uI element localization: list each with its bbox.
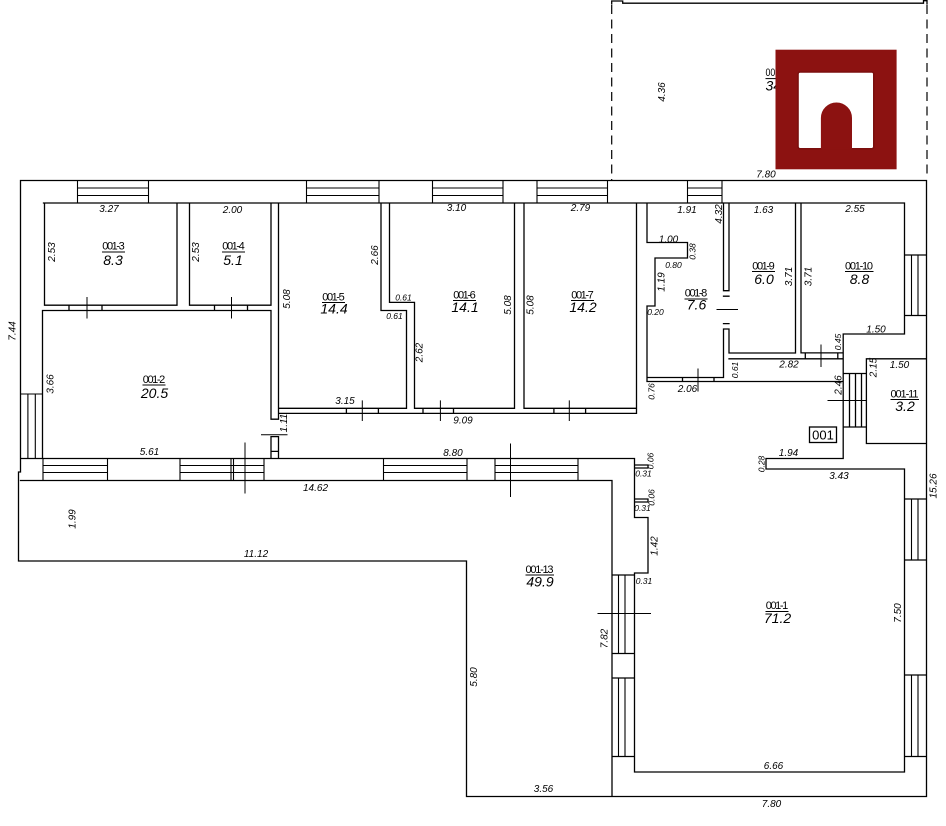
svg-text:4.32: 4.32 (714, 204, 725, 224)
svg-text:6.0: 6.0 (754, 271, 774, 287)
svg-text:2.55: 2.55 (844, 204, 865, 215)
svg-text:2.79: 2.79 (570, 203, 591, 214)
svg-text:1.94: 1.94 (779, 448, 799, 459)
svg-text:9.09: 9.09 (453, 416, 473, 427)
svg-text:1.19: 1.19 (657, 272, 668, 292)
svg-text:1.63: 1.63 (754, 205, 774, 216)
svg-text:2.15: 2.15 (869, 357, 880, 378)
svg-text:8.80: 8.80 (443, 448, 463, 459)
svg-text:001-4: 001-4 (222, 241, 245, 253)
svg-text:2.53: 2.53 (191, 242, 202, 263)
svg-text:71.2: 71.2 (764, 610, 791, 626)
svg-text:2.62: 2.62 (415, 342, 426, 363)
svg-text:5.08: 5.08 (526, 295, 537, 315)
svg-text:20.5: 20.5 (140, 385, 168, 401)
svg-text:0.38: 0.38 (688, 243, 698, 260)
svg-text:5.08: 5.08 (282, 289, 293, 309)
svg-text:1.11: 1.11 (279, 414, 290, 433)
svg-text:0.28: 0.28 (757, 455, 767, 472)
svg-text:1.91: 1.91 (677, 205, 696, 216)
svg-text:0.61: 0.61 (395, 293, 412, 303)
svg-text:14.1: 14.1 (451, 299, 478, 315)
svg-text:8.3: 8.3 (103, 252, 123, 268)
svg-text:5.1: 5.1 (223, 252, 242, 268)
svg-text:14.2: 14.2 (569, 299, 596, 315)
svg-text:5.08: 5.08 (503, 295, 514, 315)
svg-text:0.76: 0.76 (647, 383, 657, 400)
svg-text:1.42: 1.42 (650, 536, 661, 556)
svg-text:0.45: 0.45 (833, 333, 843, 350)
svg-text:7.82: 7.82 (600, 628, 611, 648)
svg-text:2.06: 2.06 (677, 384, 698, 395)
svg-text:3.15: 3.15 (335, 396, 355, 407)
svg-text:3.71: 3.71 (804, 267, 815, 286)
svg-text:14.62: 14.62 (303, 483, 328, 494)
svg-text:0.20: 0.20 (647, 307, 664, 317)
svg-text:3.43: 3.43 (829, 471, 849, 482)
svg-text:001: 001 (812, 428, 834, 443)
svg-text:0.61: 0.61 (386, 311, 403, 321)
svg-text:7.80: 7.80 (756, 170, 776, 181)
svg-text:3.71: 3.71 (784, 267, 795, 286)
svg-text:7.6: 7.6 (687, 297, 707, 313)
svg-text:2.46: 2.46 (834, 375, 845, 396)
svg-text:1.99: 1.99 (68, 509, 79, 529)
svg-text:2.00: 2.00 (222, 205, 243, 216)
svg-text:2.82: 2.82 (778, 360, 799, 371)
svg-text:49.9: 49.9 (526, 574, 553, 590)
svg-text:8.8: 8.8 (850, 271, 870, 287)
svg-text:1.50: 1.50 (866, 325, 886, 336)
svg-text:5.80: 5.80 (469, 667, 480, 687)
svg-text:3.66: 3.66 (46, 374, 57, 394)
svg-text:0.80: 0.80 (665, 260, 682, 270)
svg-text:3.10: 3.10 (447, 203, 467, 214)
svg-text:7.44: 7.44 (8, 321, 19, 341)
svg-text:15.26: 15.26 (929, 473, 940, 498)
svg-text:1.00: 1.00 (659, 235, 679, 246)
svg-text:7.80: 7.80 (762, 799, 782, 810)
svg-text:4.36: 4.36 (657, 82, 668, 102)
svg-text:6.66: 6.66 (764, 761, 784, 772)
svg-text:1.50: 1.50 (890, 360, 910, 371)
svg-text:0.61: 0.61 (730, 361, 740, 378)
svg-text:001-3: 001-3 (102, 241, 125, 253)
svg-text:0.31: 0.31 (636, 576, 653, 586)
svg-text:0.06: 0.06 (646, 452, 656, 469)
svg-text:2.66: 2.66 (370, 245, 381, 266)
svg-text:11.12: 11.12 (244, 549, 269, 560)
svg-text:3.2: 3.2 (895, 398, 915, 414)
svg-text:7.50: 7.50 (893, 603, 904, 623)
svg-text:0.06: 0.06 (647, 489, 657, 506)
svg-text:3.27: 3.27 (99, 204, 119, 215)
svg-text:2.53: 2.53 (47, 242, 58, 263)
svg-text:5.61: 5.61 (140, 447, 159, 458)
svg-text:3.56: 3.56 (534, 784, 554, 795)
svg-text:14.4: 14.4 (320, 301, 347, 317)
